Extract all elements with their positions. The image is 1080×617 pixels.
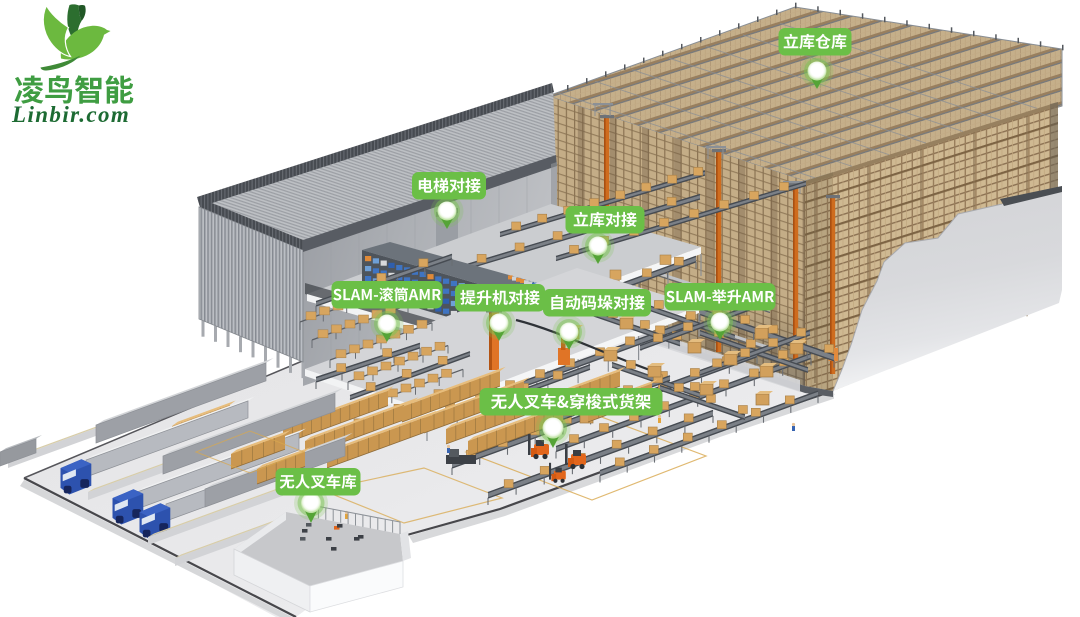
svg-text:Linbir.com: Linbir.com bbox=[11, 102, 130, 127]
